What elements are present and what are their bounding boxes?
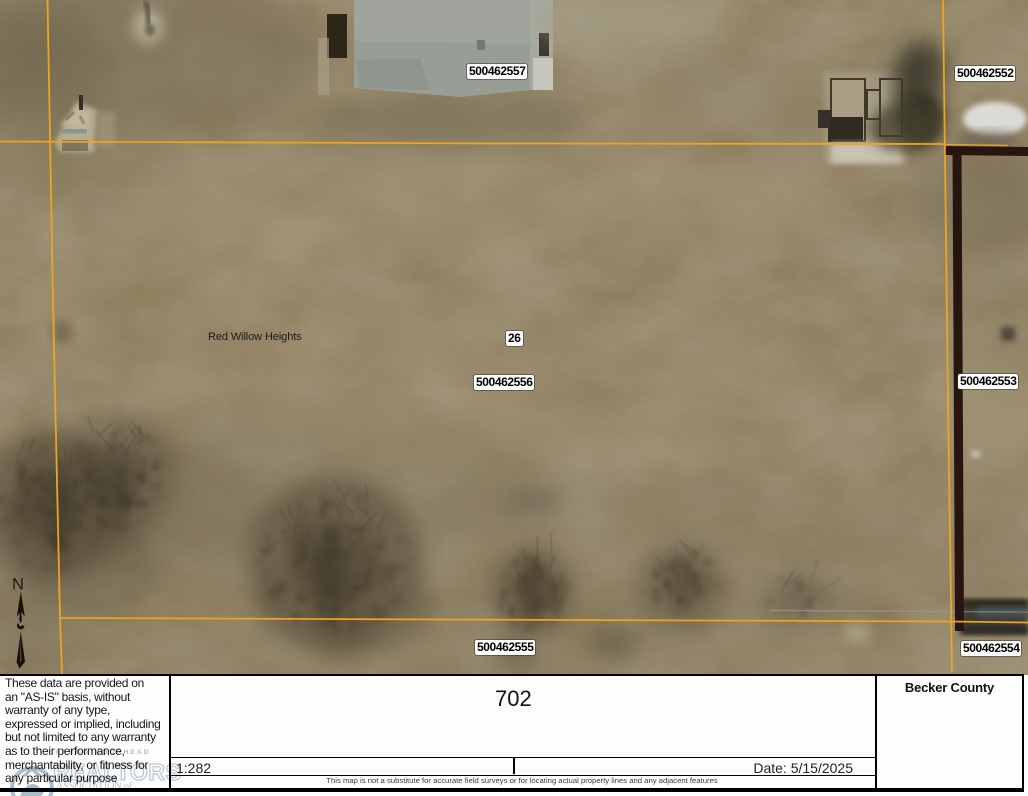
svg-text:N: N xyxy=(12,576,24,594)
